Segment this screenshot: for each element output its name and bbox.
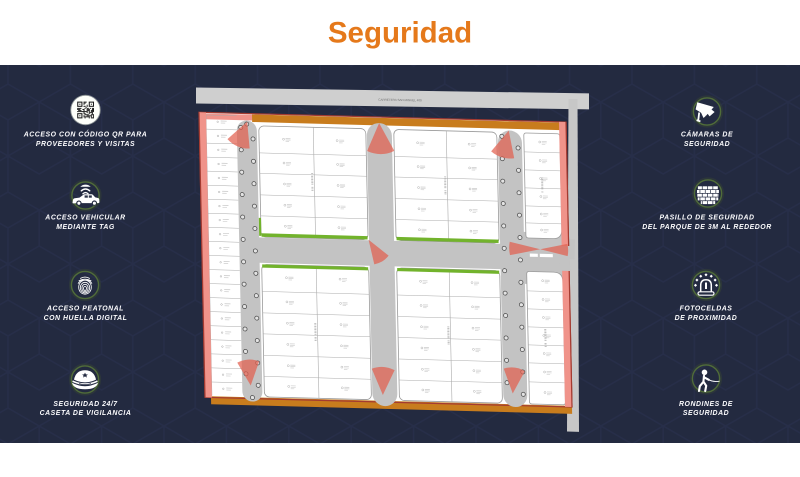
svg-text:CARRETERA SAN MIGUEL 400: CARRETERA SAN MIGUEL 400: [378, 98, 422, 103]
svg-text:CON HUELLA DIGITAL: CON HUELLA DIGITAL: [44, 315, 128, 322]
svg-text:DEL PARQUE DE 3M AL REDEDOR: DEL PARQUE DE 3M AL REDEDOR: [642, 224, 771, 231]
svg-text:SEGURIDAD: SEGURIDAD: [684, 141, 730, 148]
svg-text:DE PROXIMIDAD: DE PROXIMIDAD: [675, 315, 738, 322]
svg-text:CASETA DE VIGILANCIA: CASETA DE VIGILANCIA: [40, 410, 132, 417]
svg-text:RONDINES DE: RONDINES DE: [679, 401, 733, 408]
svg-text:SEGURIDAD: SEGURIDAD: [683, 410, 729, 417]
svg-text:FOTOCELDAS: FOTOCELDAS: [680, 306, 733, 313]
svg-text:CÁMARAS DE: CÁMARAS DE: [681, 129, 733, 138]
svg-text:PROVEEDORES Y VISITAS: PROVEEDORES Y VISITAS: [36, 141, 135, 148]
svg-text:ACCESO PEATONAL: ACCESO PEATONAL: [46, 306, 124, 313]
svg-text:SEGURIDAD 24/7: SEGURIDAD 24/7: [53, 401, 118, 408]
svg-text:MEDIANTE TAG: MEDIANTE TAG: [56, 224, 115, 231]
svg-text:Seguridad: Seguridad: [328, 17, 472, 50]
svg-text:ACCESO VEHICULAR: ACCESO VEHICULAR: [44, 215, 125, 222]
svg-text:ACCESO CON CÓDIGO QR PARA: ACCESO CON CÓDIGO QR PARA: [23, 129, 148, 138]
svg-text:PASILLO DE SEGURIDAD: PASILLO DE SEGURIDAD: [659, 215, 754, 222]
